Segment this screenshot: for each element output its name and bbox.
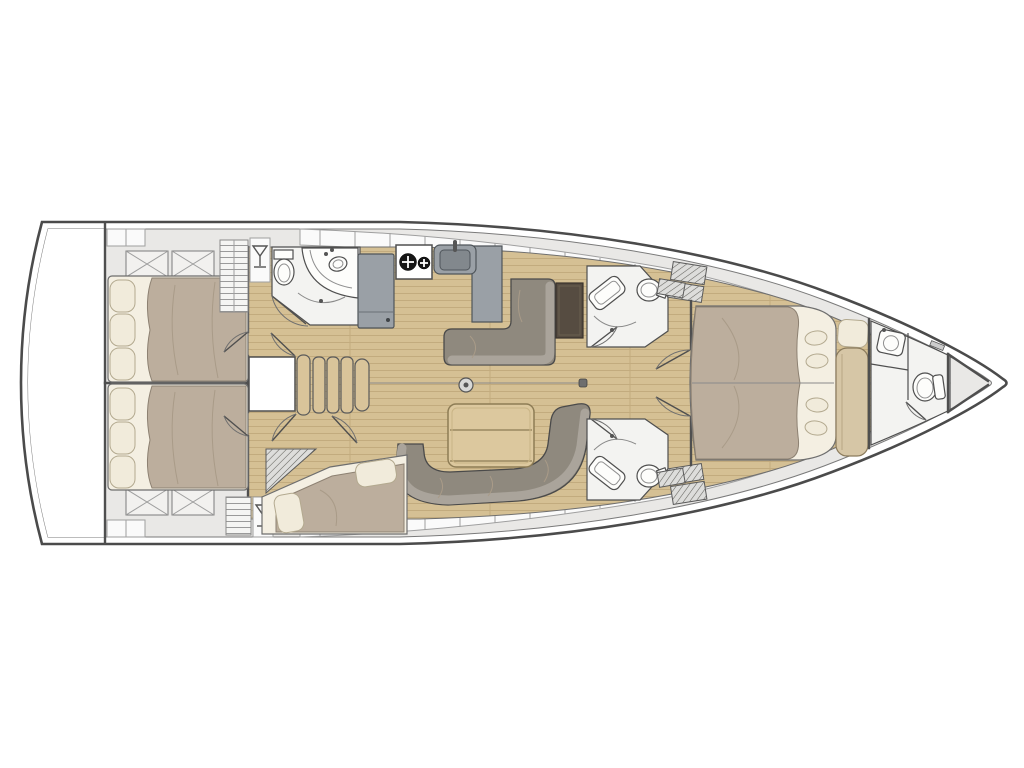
compression-post bbox=[579, 379, 587, 387]
aft-stbd-duvet bbox=[147, 386, 246, 488]
toilet bbox=[274, 259, 294, 285]
yacht-interior-floorplan bbox=[0, 0, 1024, 768]
toilet-tank bbox=[274, 250, 293, 259]
engine-compartment bbox=[249, 357, 295, 411]
fridge bbox=[358, 254, 394, 328]
pillow bbox=[110, 388, 135, 420]
pillow bbox=[110, 348, 135, 380]
faucet-icon bbox=[453, 240, 457, 252]
faucet-icon bbox=[324, 252, 328, 256]
nav-desk bbox=[556, 283, 583, 338]
sink-basin bbox=[440, 250, 470, 270]
shower-drain bbox=[319, 299, 323, 303]
faucet-icon bbox=[882, 328, 886, 332]
salon-table bbox=[448, 404, 534, 467]
pillow bbox=[110, 456, 135, 488]
pillow bbox=[110, 422, 135, 454]
companionway-steps bbox=[297, 355, 369, 415]
washbasin-counter bbox=[876, 329, 906, 357]
fridge-handle bbox=[386, 318, 390, 322]
headboard-cushion bbox=[837, 319, 869, 348]
pillow bbox=[110, 314, 135, 346]
pillow bbox=[110, 280, 135, 312]
hanging-locker-bottom bbox=[226, 497, 251, 535]
screenshot-canvas bbox=[0, 0, 1024, 768]
headboard-bench bbox=[836, 348, 868, 456]
